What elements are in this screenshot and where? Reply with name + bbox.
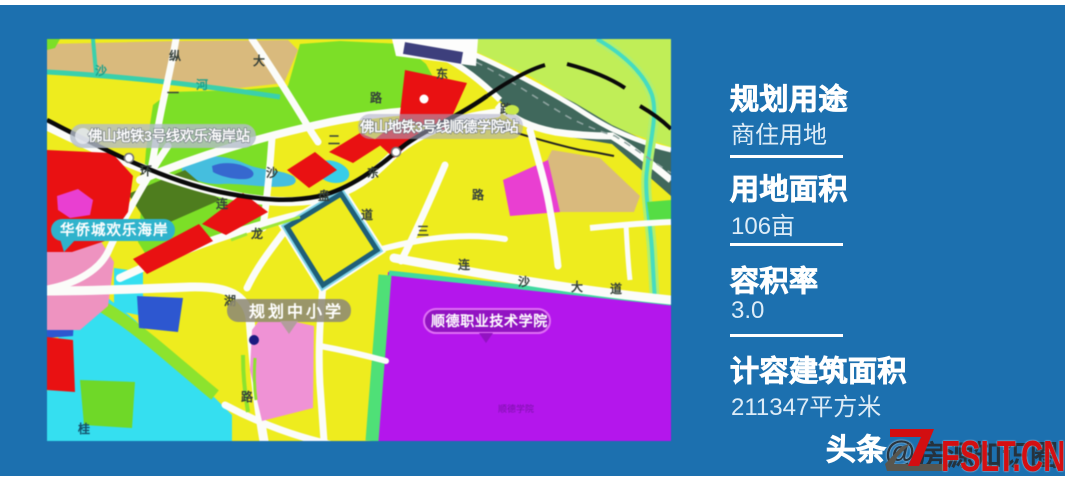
svg-text:盘: 盘 [318,188,330,203]
svg-text:龙: 龙 [251,226,263,241]
svg-text:二: 二 [328,133,340,147]
svg-text:道: 道 [361,207,373,222]
svg-text:路: 路 [472,187,485,202]
svg-text:东: 东 [436,66,448,81]
svg-text:大: 大 [253,53,265,68]
svg-text:环: 环 [140,164,152,178]
svg-text:道: 道 [610,281,622,296]
svg-text:河: 河 [195,77,208,92]
svg-text:顺德学院: 顺德学院 [498,403,534,414]
svg-text:东: 东 [367,165,379,180]
svg-text:沙: 沙 [95,64,107,78]
svg-text:路: 路 [370,90,383,105]
svg-text:一: 一 [167,86,179,100]
svg-text:沙: 沙 [266,166,278,180]
svg-text:沙: 沙 [518,275,530,289]
svg-text:规划中小学: 规划中小学 [249,302,344,321]
svg-text:大: 大 [571,279,583,294]
svg-text:华侨城欢乐海岸: 华侨城欢乐海岸 [60,221,169,239]
svg-text:纵: 纵 [169,48,181,63]
svg-text:连: 连 [458,257,471,272]
svg-text:佛山地铁3号线顺德学院站: 佛山地铁3号线顺德学院站 [359,118,519,136]
svg-text:桂: 桂 [77,421,90,436]
svg-text:佛山地铁3号线欢乐海岸站: 佛山地铁3号线欢乐海岸站 [87,127,251,145]
svg-text:顺德职业技术学院: 顺德职业技术学院 [431,313,548,329]
svg-text:连: 连 [216,196,229,211]
svg-text:三: 三 [417,224,429,238]
svg-text:路: 路 [241,389,254,404]
